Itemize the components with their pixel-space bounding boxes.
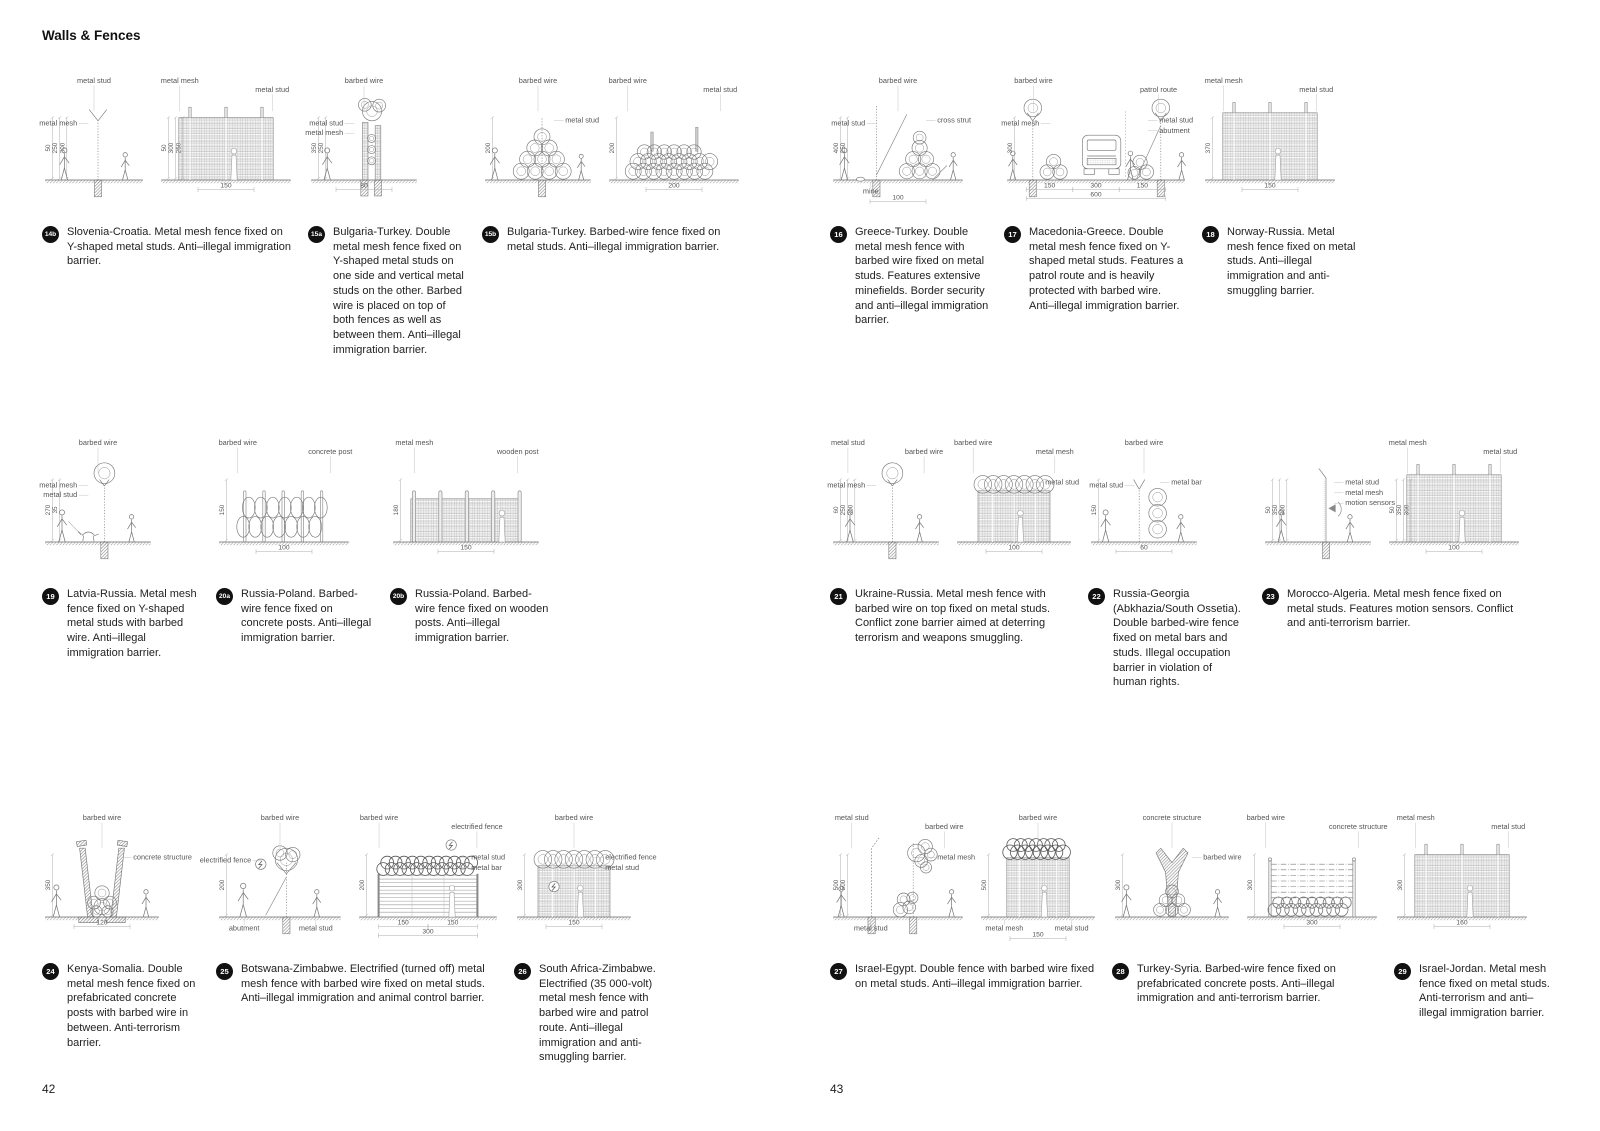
ground-hatch [833,918,963,921]
figure-number-badge: 27 [830,963,847,980]
diagram-label: 150 [219,505,226,516]
figure-caption: Latvia-Russia. Metal mesh fence fixed on… [67,587,202,661]
diagram-label: 300 [1397,880,1404,891]
diagram-label: 80 [360,183,368,190]
patrol-truck [1082,136,1120,175]
dog-figure [68,522,98,542]
diagram-label: 270 [45,505,52,516]
diagram: 50300250metal meshmetal stud150 [158,76,294,214]
diagram-label: 350 [311,143,318,154]
figure-caption: Israel-Jordan. Metal mesh fence fixed on… [1419,962,1554,1021]
ground-hatch [1265,543,1371,546]
figure-number-badge: 25 [216,963,233,980]
diagram-label: barbed wire [83,814,121,823]
figure-caption: Russia-Poland. Barbed-wire fence fixed o… [241,587,376,646]
diagram: 200barbed wireelectrified fencemetal stu… [356,813,500,951]
diagram-label: 50 [161,144,168,152]
diagram-label: 50 [45,144,52,152]
figure-16: 400250barbed wiremetal studcross strutmi… [830,64,990,328]
diagram-label: barbed wire [1247,814,1285,823]
diagram-label: concrete post [308,447,352,456]
figure-caption-row: 15aBulgaria-Turkey. Double metal mesh fe… [308,225,468,358]
figure-15b: 200barbed wiremetal stud200barbed wireme… [482,64,742,254]
diagram-zone: 300barbed wirepatrol routemetal meshmeta… [1004,64,1188,214]
diagram-label: 50 [1265,506,1272,514]
figure-15a: 350250barbed wiremetal studmetal mesh801… [308,64,468,358]
diagram-label: metal mesh [1345,488,1383,497]
diagram: 50350300metal meshmetal stud100 [1386,438,1522,576]
figure-29: 300metal meshmetal stud16029Israel-Jorda… [1394,756,1554,1021]
figure-19: 27035barbed wiremetal meshmetal stud19La… [42,426,202,661]
figure-caption-row: 20aRussia-Poland. Barbed-wire fence fixe… [216,587,376,646]
figures-row: 400250barbed wiremetal studcross strutmi… [830,64,1560,426]
diagram: 400250barbed wiremetal studcross strutmi… [830,76,966,214]
figure-caption-row: 16Greece-Turkey. Double metal mesh fence… [830,225,990,328]
ground-hatch [833,181,963,184]
person-silhouette [1459,511,1465,543]
diagram-label: 350 [45,880,52,891]
diagram: 150barbed wiremetal studmetal bar60 [1088,438,1200,576]
figure-number-badge: 20b [390,588,407,605]
ground-hatch [1115,918,1229,921]
diagram-label: 350 [1272,505,1279,516]
diagram-label: barbed wire [1014,77,1052,86]
diagram-zone: 300metal meshmetal stud160 [1394,756,1554,951]
diagram-label: metal stud [77,77,111,86]
person-silhouette [577,886,583,918]
person-silhouette [449,886,455,918]
diagram-label: metal bar [1171,478,1202,487]
diagram-label: metal stud [1089,481,1123,490]
diagram-label: metal stud [1483,447,1517,456]
page-left: Walls & Fences 50250300metal studmetal m… [42,28,784,1072]
diagram: 300barbed wireelectrified fencemetal stu… [514,813,634,951]
figure-caption: South Africa-Zimbabwe. Electrified (35 0… [539,962,674,1065]
person-silhouette [231,149,237,181]
diagram-label: metal stud [1159,116,1193,125]
diagram-label: metal stud [835,814,869,823]
figure-caption: Morocco-Algeria. Metal mesh fence fixed … [1287,587,1522,631]
diagram-label: metal stud [703,85,737,94]
figure-20a: 150barbed wireconcrete post10020aRussia-… [216,426,376,646]
figure-caption: Botswana-Zimbabwe. Electrified (turned o… [241,962,500,1006]
figure-20b: 180metal meshwooden post15020bRussia-Pol… [390,426,550,646]
diagram-label: 250 [318,143,325,154]
person-figure [1346,515,1354,542]
figure-caption: Norway-Russia. Metal mesh fence fixed on… [1227,225,1362,299]
diagram-label: 300 [1007,143,1014,154]
page-number-right: 43 [830,1082,843,1096]
diagram-label: 300 [1306,920,1317,927]
diagram-label: electrified fence [605,853,656,862]
figure-caption-row: 18Norway-Russia. Metal mesh fence fixed … [1202,225,1362,299]
diagram-label: barbed wire [261,814,299,823]
figures-row: 27035barbed wiremetal meshmetal stud19La… [42,426,784,756]
diagram-label: 150 [447,920,458,927]
figure-caption: Macedonia-Greece. Double metal mesh fenc… [1029,225,1188,313]
diagram-label: electrified fence [451,822,502,831]
diagram-label: metal bar [471,863,502,872]
diagram-label: metal mesh [937,853,975,862]
figure-25: 200barbed wireelectrified fenceabutmentm… [216,756,500,1006]
diagram-label: 150 [1137,183,1148,190]
diagram-label: barbed wire [954,439,992,448]
figure-caption-row: 26South Africa-Zimbabwe. Electrified (35… [514,962,674,1065]
person-figure [577,155,585,181]
figures-row: 50250300metal studmetal mesh50300250meta… [42,64,784,426]
diagram-label: wooden post [496,447,539,456]
diagram-zone: 400250barbed wiremetal studcross strutmi… [830,64,990,214]
diagram-label: barbed wire [609,77,647,86]
person-figure [128,515,136,542]
diagram-label: barbed wire [219,439,257,448]
diagram-label: metal mesh [395,439,433,448]
person-figure [1178,153,1186,180]
diagram-label: 100 [892,195,903,202]
ground-hatch [45,543,151,546]
diagram-label: 500 [981,880,988,891]
diagram-zone: 500500metal studbarbed wiremetal meshmet… [830,756,1098,951]
figure-caption-row: 23Morocco-Algeria. Metal mesh fence fixe… [1262,587,1522,631]
motion-sensor-icon [1328,502,1341,516]
figure-23: 50350300metal studmetal meshmotion senso… [1262,426,1522,631]
diagram: 27035barbed wiremetal meshmetal stud [42,438,154,576]
person-figure [1214,890,1222,917]
figure-number-badge: 29 [1394,963,1411,980]
figure-caption-row: 20bRussia-Poland. Barbed-wire fence fixe… [390,587,550,646]
diagram-label: 150 [1091,505,1098,516]
diagram-zone: 27035barbed wiremetal meshmetal stud [42,426,202,576]
diagram-label: metal stud [1045,478,1079,487]
figure-caption: Turkey-Syria. Barbed-wire fence fixed on… [1137,962,1380,1006]
diagram-label: 120 [96,920,107,927]
figure-18: 370metal meshmetal stud15018Norway-Russi… [1202,64,1362,299]
person-silhouette [1017,511,1023,543]
figure-number-badge: 17 [1004,226,1021,243]
diagram-label: 150 [398,920,409,927]
figure-17: 300barbed wirepatrol routemetal meshmeta… [1004,64,1188,313]
person-figure [948,890,956,917]
diagram-zone: 200barbed wiremetal stud200barbed wireme… [482,64,742,214]
diagram-label: barbed wire [1019,814,1057,823]
diagram-label: barbed wire [360,814,398,823]
ground-hatch [45,181,143,184]
diagram-label: 35 [52,506,59,514]
diagram-label: barbed wire [519,77,557,86]
figure-caption-row: 21Ukraine-Russia. Metal mesh fence with … [830,587,1074,646]
figure-caption: Slovenia-Croatia. Metal mesh fence fixed… [67,225,294,269]
diagram-zone: 300barbed wireelectrified fencemetal stu… [514,756,674,951]
diagram: 50350300metal studmetal meshmotion senso… [1262,438,1374,576]
diagram-label: metal stud [565,116,599,125]
page-number-left: 42 [42,1082,55,1096]
diagram-label: metal stud [831,119,865,128]
diagram-label: metal mesh [1001,119,1039,128]
figure-number-badge: 14b [42,226,59,243]
diagram: 150barbed wireconcrete post100 [216,438,352,576]
diagram-zone: 200barbed wireelectrified fenceabutmentm… [216,756,500,951]
diagram-label: metal stud [309,119,343,128]
diagram-label: metal mesh [39,481,77,490]
figure-caption-row: 24Kenya-Somalia. Double metal mesh fence… [42,962,202,1050]
figure-number-badge: 19 [42,588,59,605]
person-silhouette [1467,886,1473,918]
book-spread: { "header": { "title": "Walls & Fences" … [0,0,1600,1131]
diagram-label: 150 [460,545,471,552]
figure-caption: Russia-Poland. Barbed-wire fence fixed o… [415,587,550,646]
diagram-label: 250 [52,143,59,154]
diagram-label: barbed wire [1203,853,1241,862]
diagram-label: 200 [359,880,366,891]
diagram: 300barbed wireconcrete structure300 [1244,813,1380,951]
person-figure [238,884,248,918]
diagram: 200barbed wiremetal stud [482,76,594,214]
diagram-label: 200 [219,880,226,891]
person-silhouette [1275,149,1281,181]
diagram-label: 200 [485,143,492,154]
figure-number-badge: 20a [216,588,233,605]
diagram-label: metal stud [1491,822,1525,831]
figure-caption: Israel-Egypt. Double fence with barbed w… [855,962,1098,991]
diagram: 370metal meshmetal stud150 [1202,76,1338,214]
diagram-label: patrol route [1140,85,1177,94]
diagram-label: 250 [840,505,847,516]
diagram: 60250300metal studbarbed wiremetal mesh [830,438,942,576]
diagram-label: 50 [1389,506,1396,514]
ground-hatch [359,918,497,921]
diagram-label: 300 [1247,880,1254,891]
diagram-label: metal mesh [1205,77,1243,86]
figure-caption-row: 28Turkey-Syria. Barbed-wire fence fixed … [1112,962,1380,1006]
diagram: 300concrete structurebarbed wire [1112,813,1232,951]
diagram: 300metal meshmetal stud160 [1394,813,1530,951]
diagram-label: 160 [1456,920,1467,927]
diagram-label: barbed wire [345,77,383,86]
header-spacer [830,28,1560,64]
diagram: 180metal meshwooden post150 [390,438,542,576]
diagram-label: 300 [517,880,524,891]
person-figure [142,890,150,917]
figure-caption-row: 15bBulgaria-Turkey. Barbed-wire fence fi… [482,225,742,254]
diagram-label: barbed wire [79,439,117,448]
diagram-zone: 150barbed wiremetal studmetal bar60 [1088,426,1248,576]
diagram-label: 150 [220,183,231,190]
figure-caption-row: 25Botswana-Zimbabwe. Electrified (turned… [216,962,500,1006]
figures-row: 60250300metal studbarbed wiremetal meshb… [830,426,1560,756]
diagram-label: barbed wire [905,447,943,456]
figure-caption: Bulgaria-Turkey. Double metal mesh fence… [333,225,468,358]
diagram-zone: 300concrete structurebarbed wire300barbe… [1112,756,1380,951]
diagram-label: 60 [833,506,840,514]
figure-22: 150barbed wiremetal studmetal bar6022Rus… [1088,426,1248,690]
figure-caption: Ukraine-Russia. Metal mesh fence with ba… [855,587,1074,646]
figure-caption-row: 22Russia-Georgia (Abkhazia/South Ossetia… [1088,587,1248,690]
page-title: Walls & Fences [42,28,784,64]
figure-caption-row: 29Israel-Jordan. Metal mesh fence fixed … [1394,962,1554,1021]
figure-14b: 50250300metal studmetal mesh50300250meta… [42,64,294,269]
figure-number-badge: 16 [830,226,847,243]
person-figure [1008,151,1017,180]
figure-caption: Bulgaria-Turkey. Barbed-wire fence fixed… [507,225,742,254]
diagram-label: barbed wire [1125,439,1163,448]
diagram-label: 600 [1090,192,1101,199]
lightning-icon [549,882,559,892]
diagram: 50250300metal studmetal mesh [42,76,146,214]
lightning-icon [446,840,456,850]
diagram: 200barbed wireelectrified fenceabutmentm… [216,813,344,951]
diagram-label: concrete structure [1329,822,1388,831]
diagram-label: metal stud [605,863,639,872]
diagram: barbed wiremetal meshmetal stud100 [954,438,1074,576]
diagram-label: concrete structure [1143,814,1202,823]
diagram-label: metal stud [1345,478,1379,487]
diagram-label: electrified fence [200,856,251,865]
figure-number-badge: 15a [308,226,325,243]
figure-number-badge: 24 [42,963,59,980]
diagram-label: metal stud [831,439,865,448]
figure-caption-row: 19Latvia-Russia. Metal mesh fence fixed … [42,587,202,661]
diagram-zone: 50350300metal studmetal meshmotion senso… [1262,426,1522,576]
diagram-label: 300 [168,143,175,154]
diagram-label: 200 [609,143,616,154]
diagram-label: 400 [833,143,840,154]
person-silhouette [1041,886,1047,918]
diagram-label: 300 [422,929,433,936]
diagram-label: 150 [1032,932,1043,939]
figure-27: 500500metal studbarbed wiremetal meshmet… [830,756,1098,991]
person-silhouette [499,511,505,543]
diagram-label: metal mesh [1397,814,1435,823]
ground-hatch [485,181,591,184]
figure-number-badge: 15b [482,226,499,243]
diagram: 500barbed wiremetal meshmetal stud150 [978,813,1098,951]
diagram-label: metal mesh [39,119,77,128]
diagram-label: metal mesh [305,129,343,138]
diagram-zone: 50250300metal studmetal mesh50300250meta… [42,64,294,214]
figure-number-badge: 21 [830,588,847,605]
diagram-label: metal stud [43,491,77,500]
figure-caption: Greece-Turkey. Double metal mesh fence w… [855,225,990,328]
figures-row: 500500metal studbarbed wiremetal meshmet… [830,756,1560,1072]
diagram: 500500metal studbarbed wiremetal meshmet… [830,813,966,951]
diagram-label: 150 [1044,183,1055,190]
diagram-label: 60 [1140,545,1148,552]
diagram-label: barbed wire [925,822,963,831]
diagram-label: metal stud [255,85,289,94]
diagram-zone: 350barbed wireconcrete structure120 [42,756,202,951]
diagram-label: 100 [1448,545,1459,552]
figure-28: 300concrete structurebarbed wire300barbe… [1112,756,1380,1006]
diagram-label: barbed wire [555,814,593,823]
diagram-label: abutment [1159,126,1190,135]
diagram-zone: 350250barbed wiremetal studmetal mesh80 [308,64,468,214]
figure-number-badge: 22 [1088,588,1105,605]
person-figure [1122,885,1132,917]
diagram: 350250barbed wiremetal studmetal mesh80 [308,76,420,214]
diagram-label: 300 [1115,880,1122,891]
figure-caption: Russia-Georgia (Abkhazia/South Ossetia).… [1113,587,1248,690]
diagram-label: metal mesh [1389,439,1427,448]
figure-number-badge: 26 [514,963,531,980]
diagram: 200barbed wiremetal stud200 [606,76,742,214]
person-figure [121,153,129,180]
diagram-label: 100 [1008,545,1019,552]
diagram-label: metal stud [1299,85,1333,94]
person-figure [916,515,924,542]
person-figure [57,510,67,542]
diagram-label: 350 [1396,505,1403,516]
figure-caption-row: 27Israel-Egypt. Double fence with barbed… [830,962,1098,991]
diagram-label: concrete structure [133,853,192,862]
figure-caption-row: 17Macedonia-Greece. Double metal mesh fe… [1004,225,1188,313]
diagram: 300barbed wirepatrol routemetal meshmeta… [1004,76,1188,214]
diagram-zone: 180metal meshwooden post150 [390,426,550,576]
ground-hatch [981,918,1095,921]
figure-24: 350barbed wireconcrete structure12024Ken… [42,756,202,1050]
diagram-zone: 150barbed wireconcrete post100 [216,426,376,576]
diagram-label: 150 [568,920,579,927]
person-figure [1177,515,1185,542]
diagram-label: 150 [1264,183,1275,190]
page-right: 400250barbed wiremetal studcross strutmi… [830,28,1560,1072]
person-figure [52,885,62,917]
figures-row: 350barbed wireconcrete structure12024Ken… [42,756,784,1072]
diagram-label: 200 [668,183,679,190]
ground-hatch [833,543,939,546]
person-figure [1101,510,1111,542]
diagram: 350barbed wireconcrete structure120 [42,813,162,951]
ground-hatch [219,918,341,921]
diagram-label: metal mesh [827,481,865,490]
figure-caption: Kenya-Somalia. Double metal mesh fence f… [67,962,202,1050]
diagram-label: 180 [393,505,400,516]
diagram-zone: 370metal meshmetal stud150 [1202,64,1362,214]
diagram-label: barbed wire [879,77,917,86]
figure-number-badge: 23 [1262,588,1279,605]
diagram-label: 100 [278,545,289,552]
figure-21: 60250300metal studbarbed wiremetal meshb… [830,426,1074,646]
diagram-label: metal stud [471,853,505,862]
figure-caption-row: 14bSlovenia-Croatia. Metal mesh fence fi… [42,225,294,269]
figure-number-badge: 28 [1112,963,1129,980]
diagram-label: 370 [1205,143,1212,154]
diagram-label: metal mesh [161,77,199,86]
person-figure [313,890,321,917]
diagram-label: cross strut [937,116,971,125]
person-figure [949,153,957,180]
figure-number-badge: 18 [1202,226,1219,243]
figure-26: 300barbed wireelectrified fencemetal stu… [514,756,674,1065]
diagram-zone: 60250300metal studbarbed wiremetal meshb… [830,426,1074,576]
diagram-label: metal mesh [1036,447,1074,456]
diagram-label: 300 [1090,183,1101,190]
